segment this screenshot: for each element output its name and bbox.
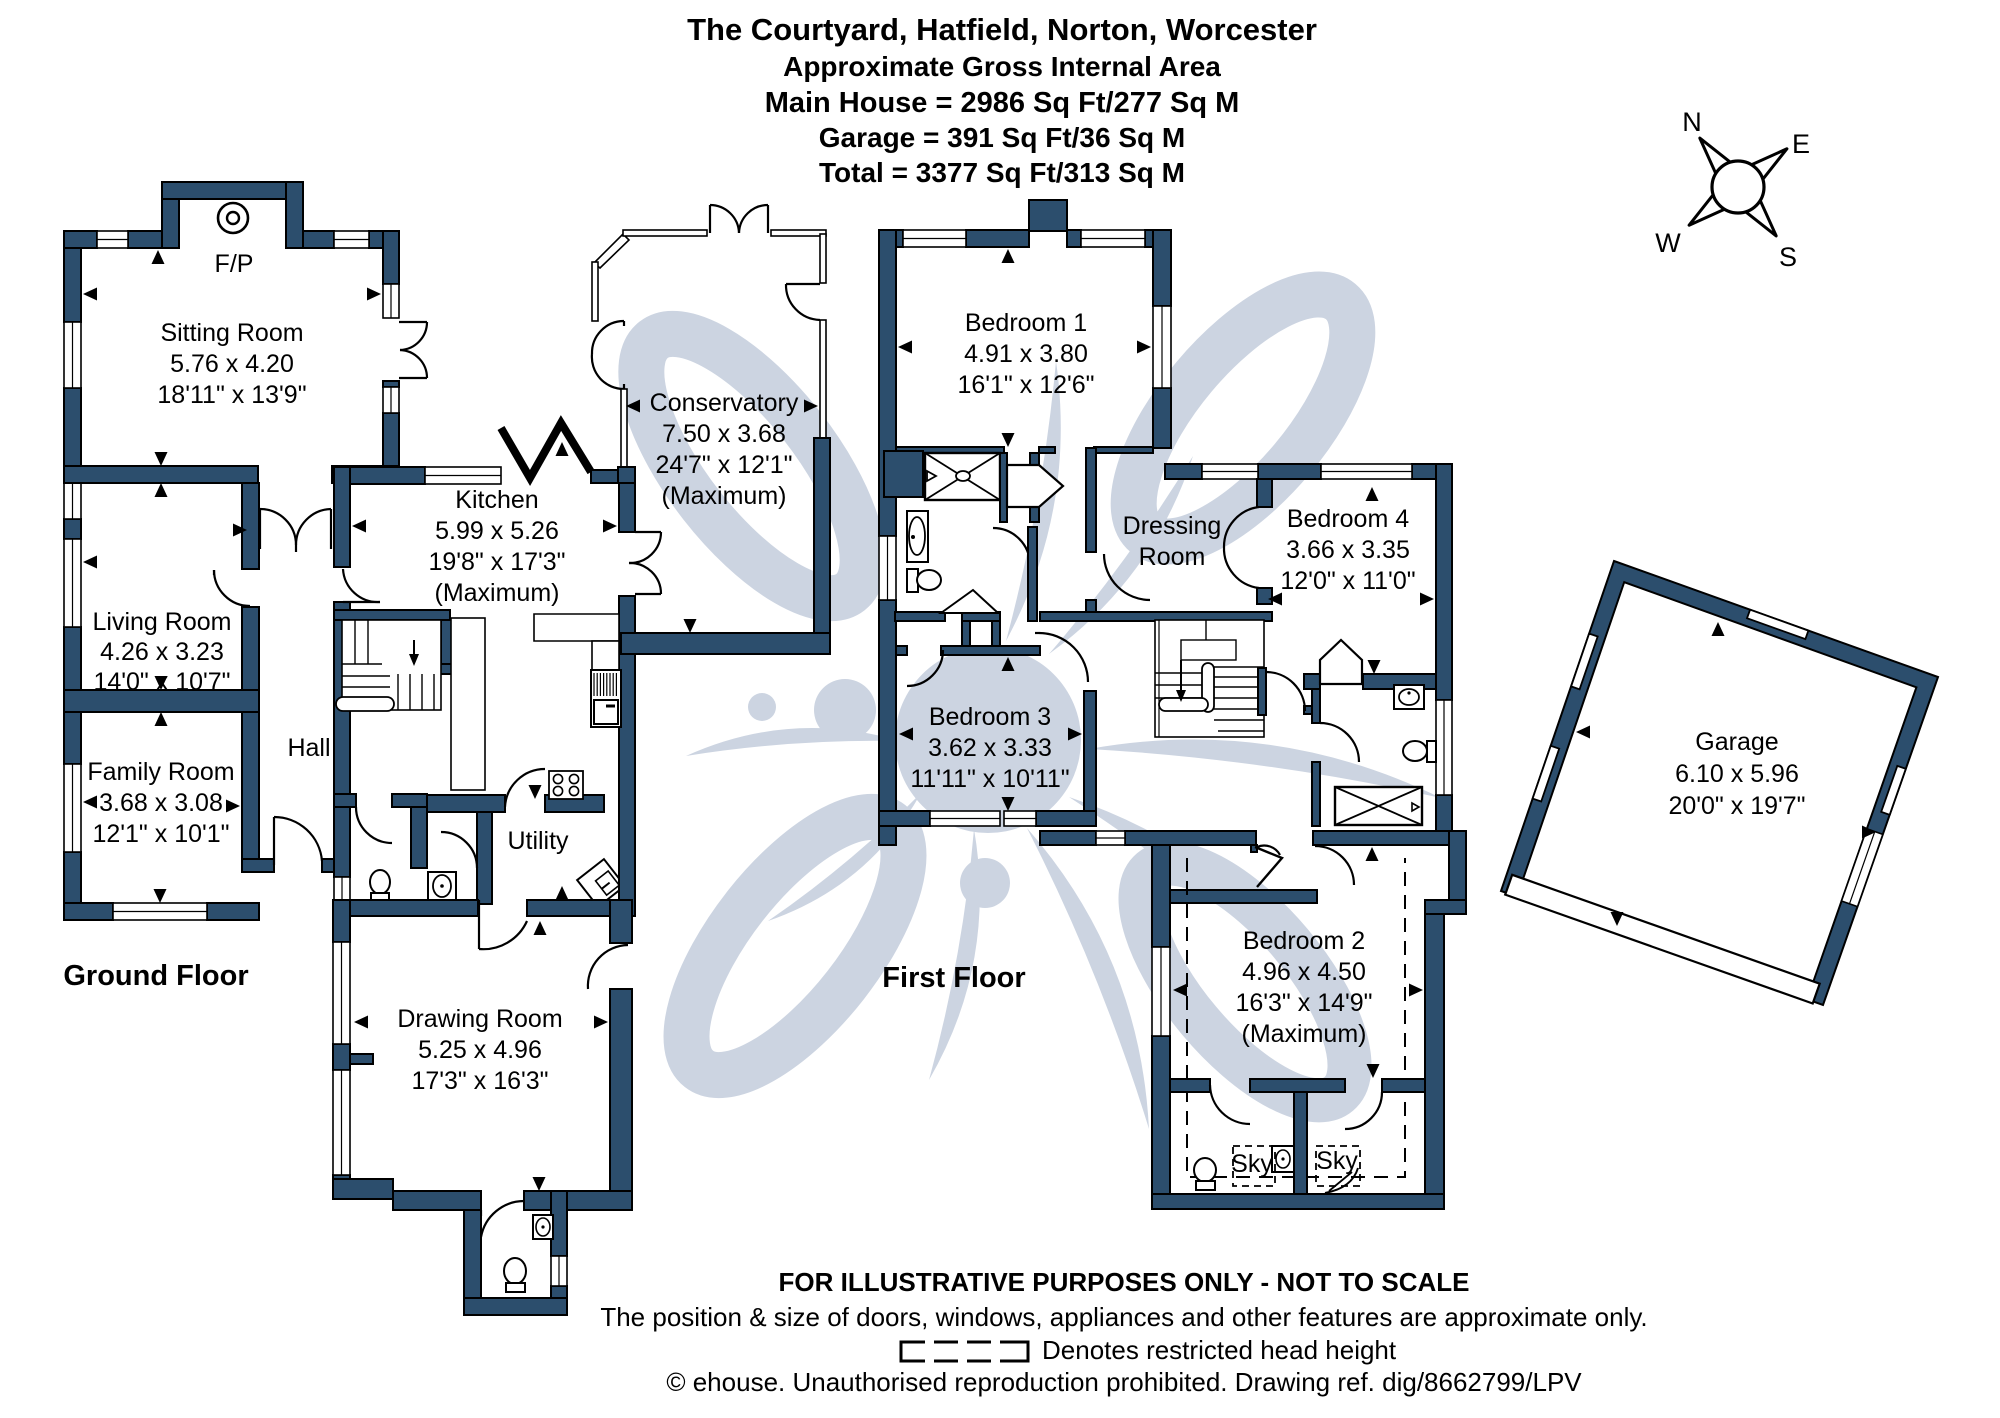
svg-text:3.68 x 3.08: 3.68 x 3.08: [99, 789, 223, 817]
svg-text:FOR ILLUSTRATIVE PURPOSES ONLY: FOR ILLUSTRATIVE PURPOSES ONLY - NOT TO …: [779, 1267, 1470, 1297]
svg-text:W: W: [1655, 228, 1681, 258]
svg-text:(Maximum): (Maximum): [662, 482, 787, 510]
svg-text:6.10 x 5.96: 6.10 x 5.96: [1675, 760, 1799, 788]
svg-text:Sky: Sky: [1231, 1150, 1273, 1178]
svg-text:4.91 x 3.80: 4.91 x 3.80: [964, 340, 1088, 368]
svg-text:16'1" x 12'6": 16'1" x 12'6": [957, 371, 1094, 399]
svg-text:Denotes restricted head height: Denotes restricted head height: [1042, 1335, 1397, 1365]
svg-text:Kitchen: Kitchen: [455, 486, 538, 514]
svg-text:Bedroom 4: Bedroom 4: [1287, 505, 1409, 533]
svg-text:Utility: Utility: [507, 827, 569, 855]
svg-text:Total = 3377 Sq Ft/313 Sq M: Total = 3377 Sq Ft/313 Sq M: [819, 157, 1185, 188]
svg-text:Conservatory: Conservatory: [650, 389, 799, 417]
svg-text:Dressing: Dressing: [1123, 512, 1222, 540]
svg-text:Room: Room: [1139, 543, 1206, 571]
svg-text:Garage = 391 Sq Ft/36 Sq M: Garage = 391 Sq Ft/36 Sq M: [819, 122, 1185, 153]
svg-text:7.50 x 3.68: 7.50 x 3.68: [662, 420, 786, 448]
svg-text:E: E: [1792, 129, 1810, 159]
svg-text:11'11" x 10'11": 11'11" x 10'11": [910, 765, 1069, 793]
svg-text:3.66 x 3.35: 3.66 x 3.35: [1286, 536, 1410, 564]
svg-text:Bedroom 2: Bedroom 2: [1243, 927, 1365, 955]
svg-text:First Floor: First Floor: [882, 962, 1025, 994]
svg-text:F/P: F/P: [215, 250, 254, 278]
svg-text:4.96 x 4.50: 4.96 x 4.50: [1242, 958, 1366, 986]
svg-text:Hall: Hall: [287, 734, 330, 762]
svg-text:12'1" x 10'1": 12'1" x 10'1": [92, 820, 229, 848]
svg-text:The position & size of doors,: The position & size of doors, windows, a…: [600, 1302, 1647, 1332]
svg-text:5.99 x 5.26: 5.99 x 5.26: [435, 517, 559, 545]
svg-text:(Maximum): (Maximum): [1242, 1020, 1367, 1048]
svg-text:Bedroom 1: Bedroom 1: [965, 309, 1087, 337]
svg-text:N: N: [1682, 107, 1702, 137]
svg-text:Ground Floor: Ground Floor: [63, 960, 248, 992]
svg-text:20'0" x 19'7": 20'0" x 19'7": [1668, 792, 1805, 820]
svg-text:Bedroom 3: Bedroom 3: [929, 703, 1051, 731]
svg-text:Sky: Sky: [1316, 1147, 1358, 1175]
svg-text:16'3" x 14'9": 16'3" x 14'9": [1235, 989, 1372, 1017]
svg-text:12'0" x 11'0": 12'0" x 11'0": [1280, 567, 1415, 595]
svg-text:5.76 x 4.20: 5.76 x 4.20: [170, 350, 294, 378]
svg-text:24'7" x 12'1": 24'7" x 12'1": [655, 451, 792, 479]
svg-text:17'3" x 16'3": 17'3" x 16'3": [411, 1067, 548, 1095]
svg-text:S: S: [1779, 242, 1797, 272]
svg-text:Garage: Garage: [1695, 728, 1778, 756]
svg-text:Main House = 2986 Sq Ft/277 Sq: Main House = 2986 Sq Ft/277 Sq M: [765, 87, 1240, 119]
svg-text:Family Room: Family Room: [87, 758, 234, 786]
svg-text:Sitting Room: Sitting Room: [160, 319, 303, 347]
svg-text:Living Room: Living Room: [93, 608, 232, 636]
svg-text:Approximate Gross Internal Are: Approximate Gross Internal Area: [783, 51, 1221, 82]
svg-text:The Courtyard, Hatfield, Norto: The Courtyard, Hatfield, Norton, Worcest…: [687, 12, 1317, 47]
svg-text:4.26 x 3.23: 4.26 x 3.23: [100, 638, 224, 666]
svg-text:(Maximum): (Maximum): [435, 579, 560, 607]
svg-text:19'8" x 17'3": 19'8" x 17'3": [428, 548, 565, 576]
svg-text:3.62 x 3.33: 3.62 x 3.33: [928, 734, 1052, 762]
svg-text:© ehouse. Unauthorised reprodu: © ehouse. Unauthorised reproduction proh…: [666, 1367, 1582, 1397]
svg-text:18'11" x 13'9": 18'11" x 13'9": [157, 381, 306, 409]
svg-text:5.25 x 4.96: 5.25 x 4.96: [418, 1036, 542, 1064]
svg-text:Drawing Room: Drawing Room: [397, 1005, 562, 1033]
